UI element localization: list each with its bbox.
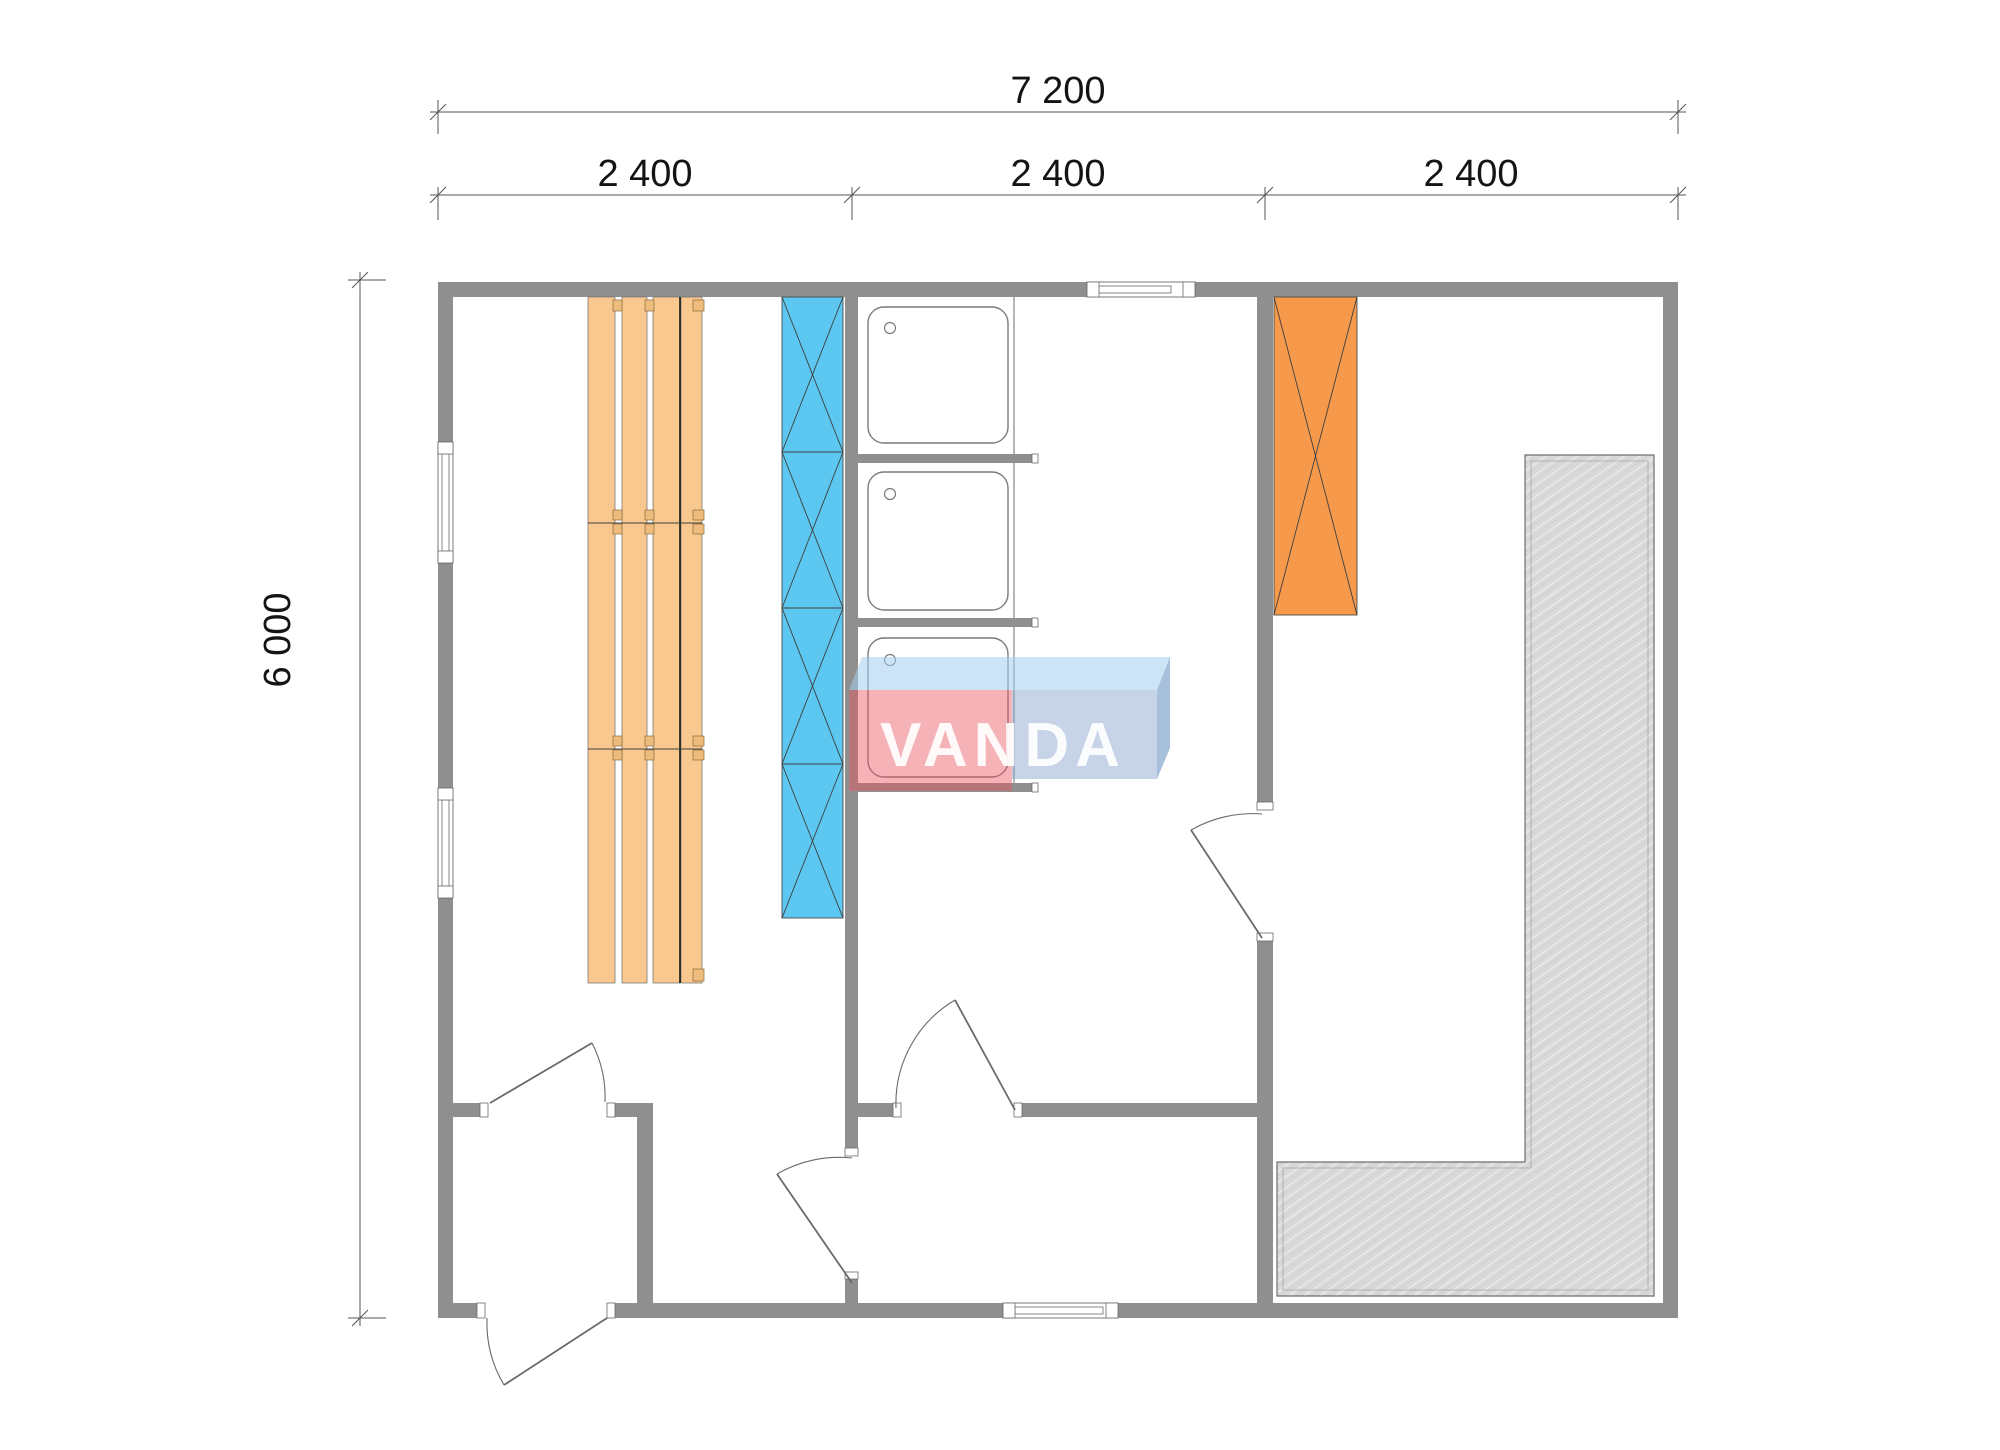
wall-vestibule-right	[637, 1117, 653, 1303]
door-jamb	[893, 1103, 901, 1117]
floor-plan-drawing: 7 200 2 400 2 400 2 400 6 000	[0, 0, 2000, 1450]
window-icon	[438, 442, 453, 563]
shower-divider	[858, 454, 1032, 463]
sauna-benches	[588, 297, 704, 983]
door-jamb	[607, 1103, 615, 1117]
dim-height-label: 6 000	[257, 592, 299, 687]
vanda-watermark: VANDA	[849, 657, 1170, 791]
entrance-opening	[477, 1302, 615, 1319]
logo-top-face	[849, 657, 1170, 690]
logo-text: VANDA	[880, 711, 1126, 780]
wall-shower-restroom-lower	[1257, 941, 1273, 1303]
bench-plank	[681, 297, 702, 983]
wall-right	[1663, 282, 1678, 1318]
dimension-total-width: 7 200	[430, 70, 1686, 134]
window-icon	[438, 788, 453, 898]
wall-shower-restroom-upper	[1257, 297, 1273, 810]
door-jamb	[607, 1303, 615, 1318]
shower-divider	[858, 618, 1032, 627]
bench-plank	[622, 297, 647, 983]
door-icon	[777, 1157, 852, 1283]
window-icon	[1003, 1303, 1118, 1318]
dimension-segments: 2 400 2 400 2 400	[430, 153, 1686, 220]
dim-segment-label-2: 2 400	[1010, 153, 1105, 195]
wall-hall-left	[858, 1103, 893, 1117]
bench-plank	[588, 297, 615, 983]
door-jamb	[480, 1103, 488, 1117]
door-icon	[896, 1000, 1015, 1110]
floor-plan-page: 7 200 2 400 2 400 2 400 6 000	[0, 0, 2000, 1450]
wall-hall-right	[1022, 1103, 1257, 1117]
door-icon	[490, 1043, 605, 1103]
door-jamb	[1014, 1103, 1022, 1117]
door-jamb	[845, 1148, 858, 1156]
window-icon	[1087, 282, 1195, 297]
shower-tray-icon	[868, 472, 1008, 610]
dim-segment-label-1: 2 400	[597, 153, 692, 195]
shower-tray-icon	[868, 307, 1008, 443]
wall-vestibule-top-right	[615, 1103, 653, 1117]
wall-top	[438, 282, 1678, 297]
bench-plank	[653, 297, 680, 983]
sauna-heater	[782, 297, 843, 918]
dim-segment-label-3: 2 400	[1423, 153, 1518, 195]
door-icon	[487, 1318, 607, 1385]
door-jamb	[1257, 802, 1273, 810]
interior-walls	[453, 297, 1273, 1303]
dimension-height: 6 000	[257, 272, 386, 1326]
door-jamb	[477, 1303, 485, 1318]
door-icon	[1191, 814, 1262, 938]
wall-vestibule-top-left	[453, 1103, 480, 1117]
cabinet	[1274, 297, 1357, 615]
dim-total-label: 7 200	[1010, 70, 1105, 112]
